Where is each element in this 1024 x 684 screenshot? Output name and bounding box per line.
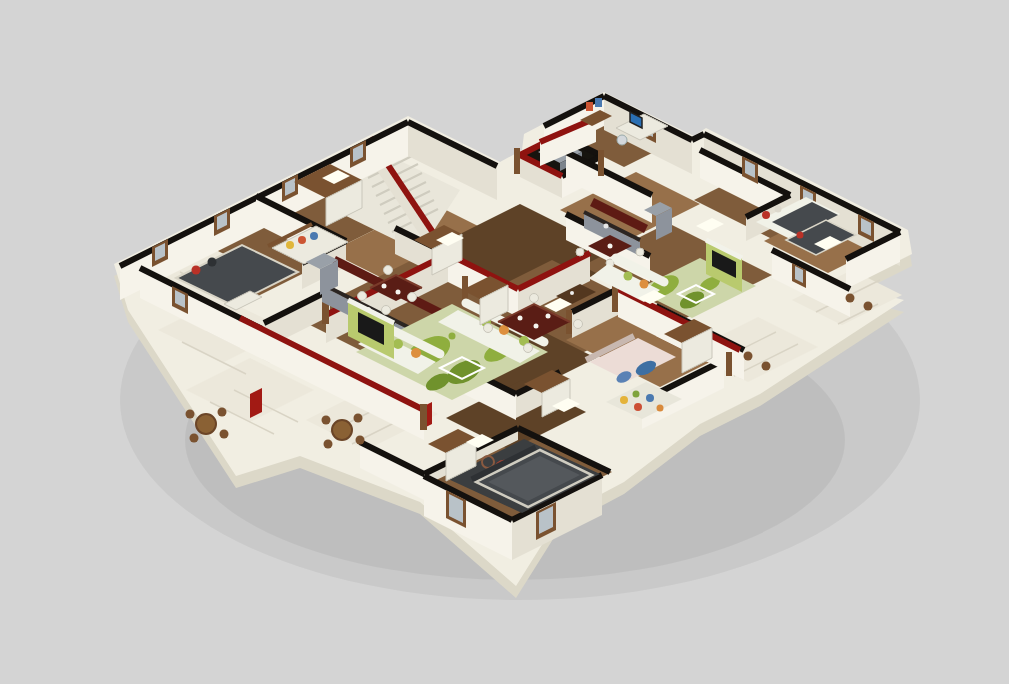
sink [604, 224, 609, 229]
chair [190, 434, 199, 443]
chair [744, 352, 753, 361]
chair [530, 294, 539, 303]
round-table [196, 414, 216, 434]
chair [354, 414, 363, 423]
desk-chair [617, 135, 627, 145]
floor-plan-3d-render [0, 0, 1024, 684]
chair [762, 362, 771, 371]
chair [524, 344, 533, 353]
chair [324, 440, 333, 449]
chair [356, 436, 365, 445]
chair [484, 324, 493, 333]
chair [384, 266, 393, 275]
chair [220, 430, 229, 439]
red-pillow [192, 266, 201, 275]
chair [864, 302, 873, 311]
chair [576, 248, 584, 256]
chair [636, 248, 644, 256]
chair [186, 410, 195, 419]
chair [574, 320, 583, 329]
chair [218, 408, 227, 417]
chair [322, 416, 331, 425]
round-table [332, 420, 352, 440]
red-pillow [762, 211, 770, 219]
chair [358, 292, 367, 301]
chair [846, 294, 855, 303]
render-canvas [0, 0, 1024, 684]
red-pillow [797, 232, 804, 239]
chair [382, 306, 391, 315]
chair [408, 293, 417, 302]
right-margin-strip [1009, 0, 1024, 684]
